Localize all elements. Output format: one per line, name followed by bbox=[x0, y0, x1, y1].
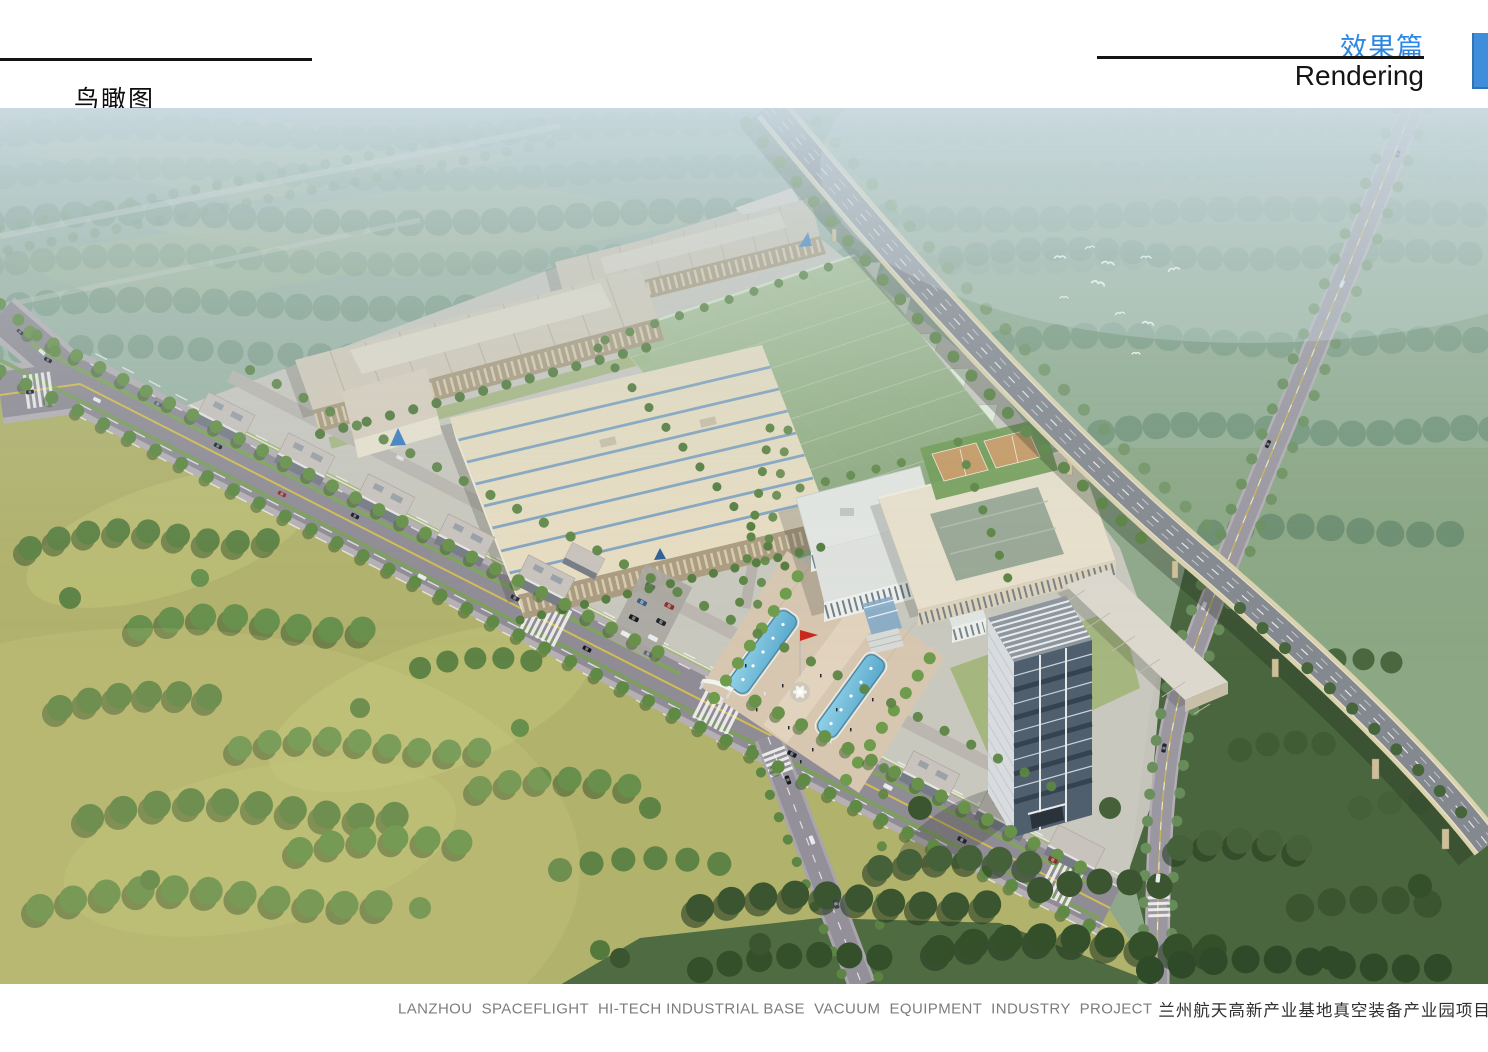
plaza-sculpture bbox=[790, 682, 810, 702]
aerial-rendering bbox=[0, 108, 1488, 984]
header-rule-right bbox=[1097, 56, 1424, 59]
footer-caption: LANZHOU SPACEFLIGHT HI-TECH INDUSTRIAL B… bbox=[398, 997, 1488, 1017]
caption-chinese: 兰州航天高新产业基地真空装备产业园项目 bbox=[1158, 1002, 1488, 1020]
caption-english: LANZHOU SPACEFLIGHT HI-TECH INDUSTRIAL B… bbox=[398, 1001, 1152, 1018]
corner-accent-block bbox=[1472, 33, 1488, 89]
header-rule-left bbox=[0, 58, 312, 61]
aerial-rendering-figure bbox=[0, 108, 1488, 984]
album-page: 鸟瞰图 效果篇 Rendering bbox=[0, 0, 1488, 1052]
section-title-en: Rendering bbox=[1295, 60, 1424, 92]
